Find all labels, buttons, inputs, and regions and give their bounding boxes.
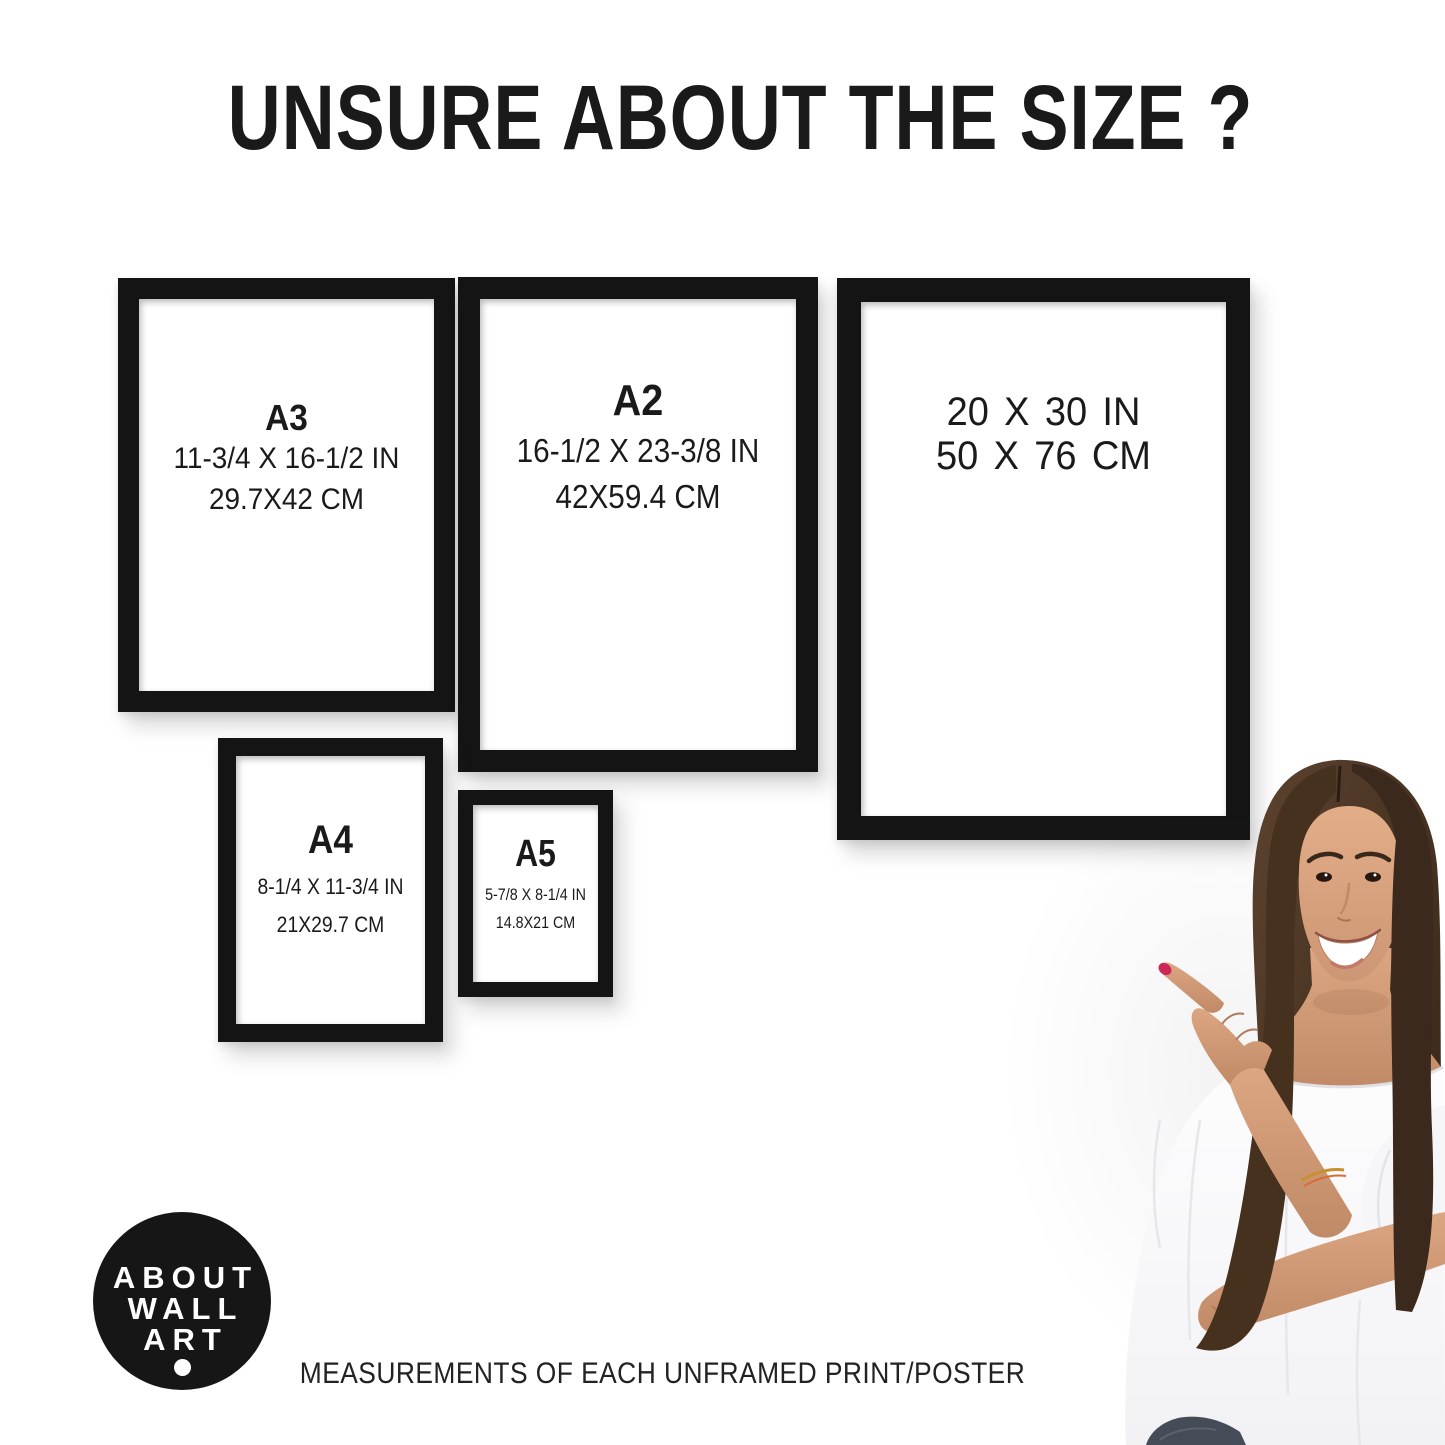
logo-text-art: ART — [93, 1324, 271, 1355]
size-inches-a2: 16-1/2 X 23-3/8 IN — [496, 428, 780, 474]
size-inches-a5: 5-7/8 X 8-1/4 IN — [483, 884, 588, 905]
logo-text-wall: WALL — [93, 1293, 271, 1324]
size-label-a2: A2 — [496, 375, 780, 428]
page-title: UNSURE ABOUT THE SIZE ? — [163, 66, 1319, 171]
frame-a3-mat: A3 11-3/4 X 16-1/2 IN 29.7X42 CM — [139, 299, 434, 691]
size-inches-a4: 8-1/4 X 11-3/4 IN — [247, 873, 413, 902]
size-cm-a3: 29.7X42 CM — [149, 480, 423, 521]
size-label-a4: A4 — [247, 816, 413, 864]
logo-text-about: ABOUT — [93, 1262, 271, 1293]
frame-a2: A2 16-1/2 X 23-3/8 IN 42X59.4 CM — [458, 277, 818, 772]
frame-a5-mat: A5 5-7/8 X 8-1/4 IN 14.8X21 CM — [473, 805, 598, 982]
size-inches-a3: 11-3/4 X 16-1/2 IN — [149, 439, 423, 480]
size-cm-a5: 14.8X21 CM — [483, 912, 588, 933]
frame-a2-mat: A2 16-1/2 X 23-3/8 IN 42X59.4 CM — [480, 299, 796, 750]
frame-a4: A4 8-1/4 X 11-3/4 IN 21X29.7 CM — [218, 738, 443, 1042]
frame-a3: A3 11-3/4 X 16-1/2 IN 29.7X42 CM — [118, 278, 455, 712]
size-inches-20x30: 20 X 30 IN — [870, 390, 1217, 434]
woman-photo — [1095, 755, 1445, 1445]
size-cm-20x30: 50 X 76 CM — [870, 434, 1217, 478]
size-cm-a4: 21X29.7 CM — [247, 911, 413, 940]
size-label-a3: A3 — [149, 396, 423, 439]
frame-a5: A5 5-7/8 X 8-1/4 IN 14.8X21 CM — [458, 790, 613, 997]
size-guide-image: UNSURE ABOUT THE SIZE ? A3 11-3/4 X 16-1… — [0, 0, 1445, 1445]
frame-a4-mat: A4 8-1/4 X 11-3/4 IN 21X29.7 CM — [236, 756, 425, 1024]
size-cm-a2: 42X59.4 CM — [496, 474, 780, 520]
frame-20x30-mat: 20 X 30 IN 50 X 76 CM — [861, 302, 1226, 816]
size-label-a5: A5 — [483, 833, 588, 877]
